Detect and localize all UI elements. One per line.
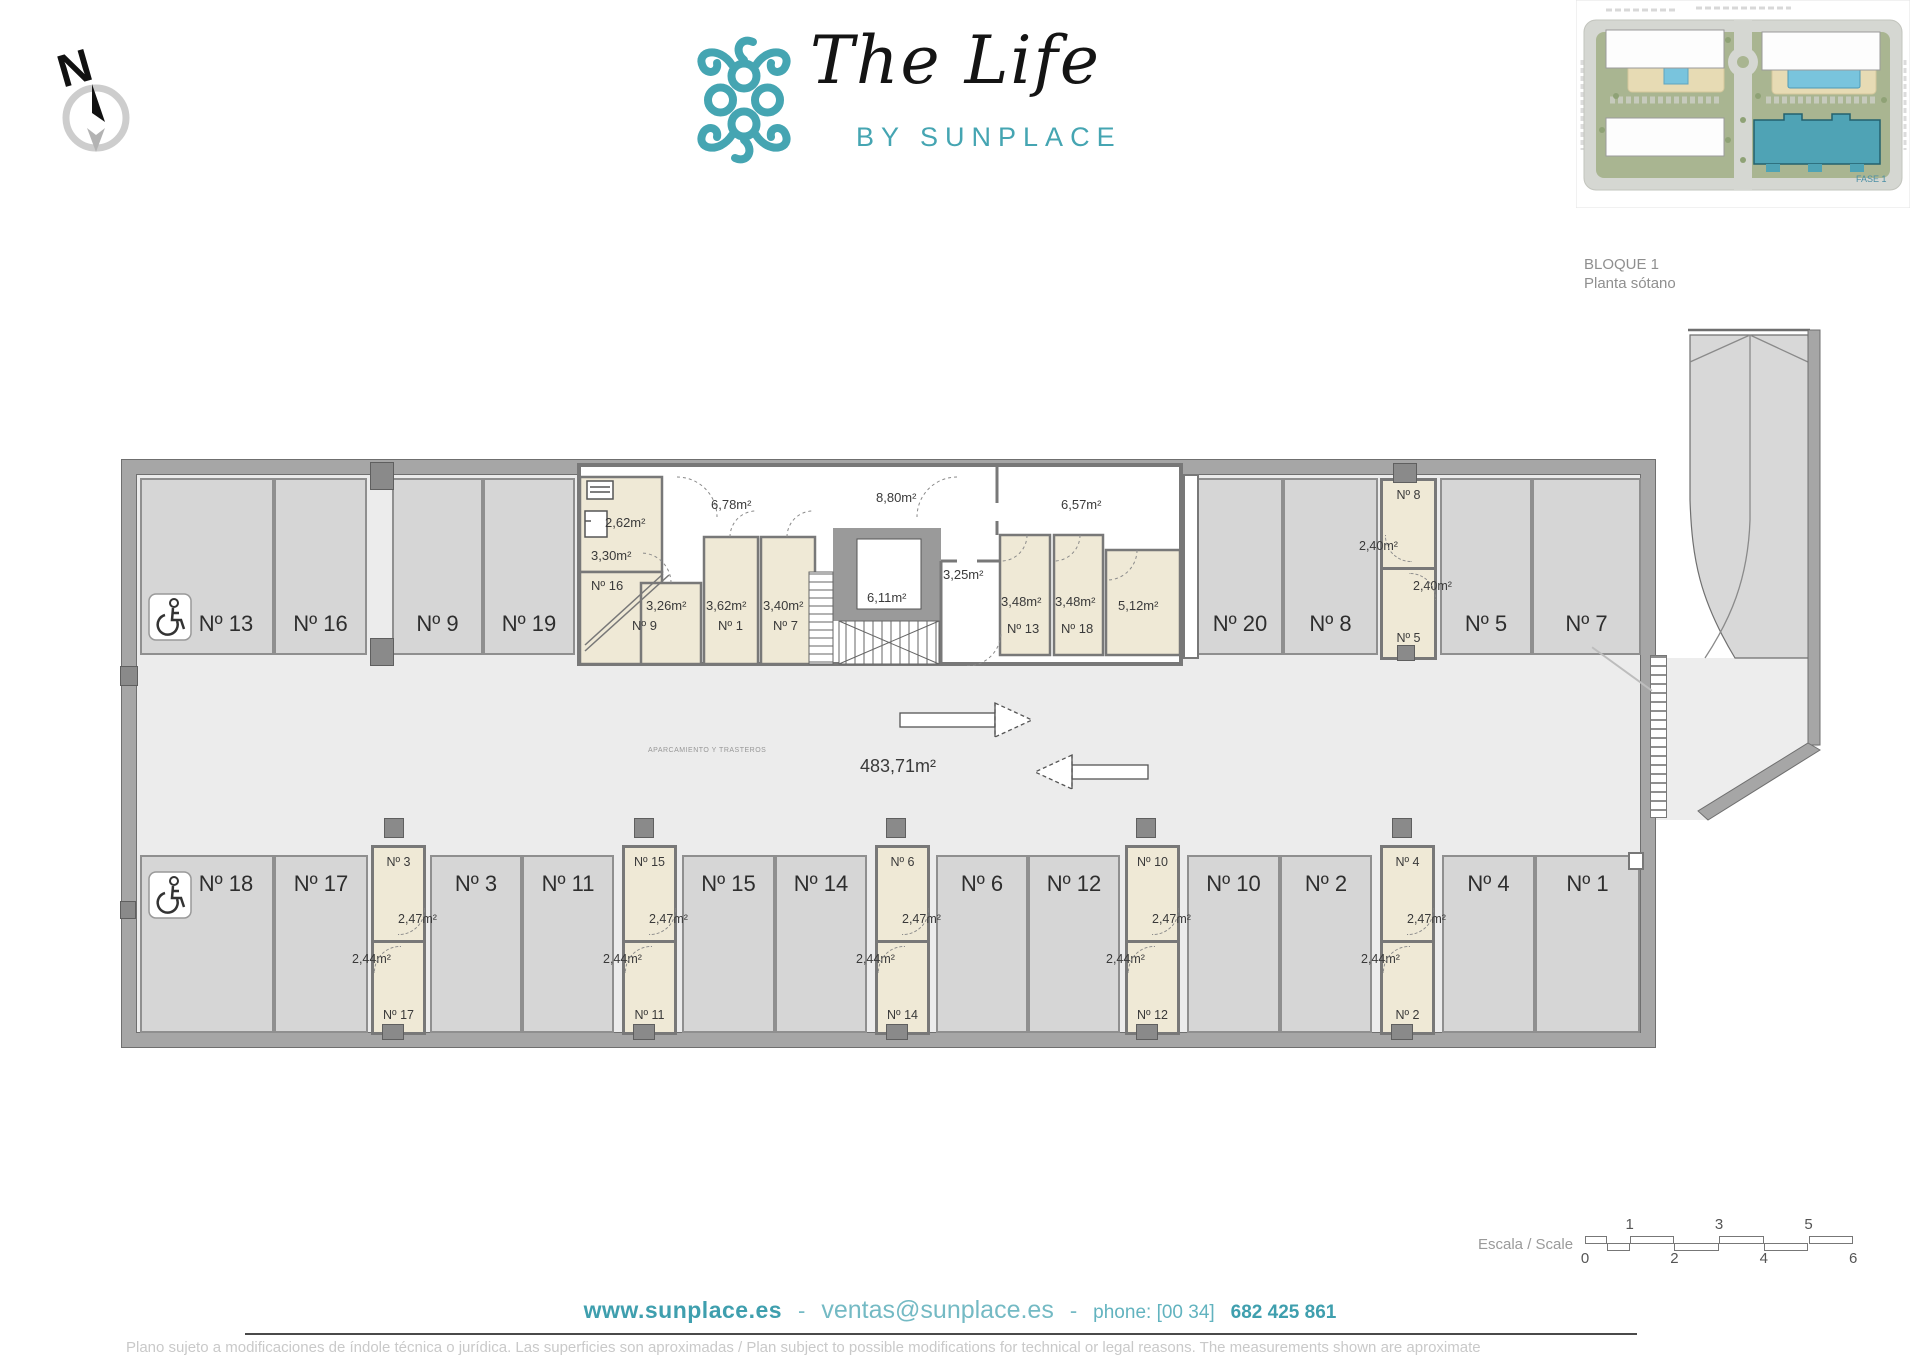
parking-stall: Nº 14 — [775, 855, 867, 1033]
structural-pillar — [1397, 645, 1415, 661]
room-area: 5,12m² — [1118, 598, 1159, 613]
scale-tick-number: 3 — [1709, 1216, 1729, 1233]
structural-pillar — [634, 818, 654, 838]
room-area: 3,26m² — [646, 598, 687, 613]
storage-divider-wall — [371, 940, 426, 943]
elevator-area: 6,11m² — [867, 590, 907, 605]
corridor-area: 6,78m² — [711, 497, 752, 512]
site-plan-thumbnail: FASE 1 — [1576, 0, 1910, 208]
structural-pillar — [1391, 1024, 1413, 1040]
footer-separator: - — [1070, 1298, 1077, 1324]
room-number: Nº 18 — [1061, 621, 1093, 636]
side-door — [1628, 852, 1644, 870]
parking-stall-label: Nº 4 — [1467, 871, 1509, 897]
door-swing — [649, 908, 676, 935]
storage-divider-wall — [875, 940, 930, 943]
storage-room-column: Nº 62,47m²2,44m²Nº 14 — [875, 845, 930, 1035]
footer-divider — [245, 1333, 1637, 1335]
vestibule-area: 3,25m² — [943, 567, 984, 582]
scale-label: Escala / Scale — [1478, 1236, 1573, 1253]
structural-pillar — [120, 666, 138, 686]
parking-stall: Nº 2 — [1280, 855, 1372, 1033]
parking-stall-label: Nº 7 — [1565, 611, 1607, 637]
structural-pillar — [120, 901, 136, 919]
storage-label: Nº 11 — [625, 1008, 674, 1022]
scale-segment — [1809, 1236, 1854, 1244]
storage-label: Nº 6 — [878, 855, 927, 869]
footer-separator: - — [798, 1298, 805, 1324]
phase-label: FASE 1 — [1856, 174, 1887, 184]
corridor-area: 6,57m² — [1061, 497, 1102, 512]
garage-gate — [1650, 655, 1667, 818]
room-area: 3,30m² — [591, 548, 632, 563]
parking-stall: Nº 20 — [1197, 478, 1283, 655]
storage-room-column: Nº 42,47m²2,44m²Nº 2 — [1380, 845, 1435, 1035]
scale-tick-number: 5 — [1799, 1216, 1819, 1233]
parking-stall: Nº 9 — [392, 478, 483, 655]
room-number: Nº 16 — [591, 578, 623, 593]
parking-stall-label: Nº 19 — [502, 611, 557, 637]
logo-title: The Life — [810, 22, 1101, 99]
parking-stall: Nº 18 — [140, 855, 274, 1033]
door-swing — [625, 946, 652, 973]
disclaimer-text: Plano sujeto a modificaciones de índole … — [126, 1339, 1481, 1356]
footer-email: ventas@sunplace.es — [821, 1296, 1053, 1325]
north-compass-icon: N — [44, 38, 156, 168]
parking-stall-label: Nº 14 — [794, 871, 849, 897]
door-swing — [1152, 908, 1179, 935]
structural-pillar — [1393, 463, 1417, 483]
parking-stall: Nº 10 — [1187, 855, 1280, 1033]
structural-pillar — [384, 818, 404, 838]
storage-divider-wall — [1380, 940, 1435, 943]
room-area: 3,40m² — [763, 598, 804, 613]
door-swing — [1409, 573, 1436, 600]
door-swing — [1407, 908, 1434, 935]
storage-label: Nº 3 — [374, 855, 423, 869]
door-swing — [374, 946, 401, 973]
structural-pillar — [633, 1024, 655, 1040]
storage-label: Nº 8 — [1383, 488, 1434, 502]
footer-phone-number: 682 425 861 — [1231, 1302, 1337, 1324]
structural-pillar — [1136, 1024, 1158, 1040]
direction-arrow-left-icon — [1072, 765, 1148, 779]
footer-contact: www.sunplace.es - ventas@sunplace.es - p… — [0, 1296, 1920, 1325]
room-number: Nº 1 — [718, 618, 743, 633]
scale-tick-number: 4 — [1754, 1250, 1774, 1267]
parking-stall: Nº 7 — [1532, 478, 1641, 655]
corridor-area: 8,80m² — [876, 490, 917, 505]
plan-sheet: N The Life BY SUNPLACE — [0, 0, 1920, 1358]
footer-website: www.sunplace.es — [584, 1297, 782, 1324]
footer-phone-label: phone: [00 34] — [1093, 1302, 1215, 1324]
room-area: 3,62m² — [706, 598, 747, 613]
parking-stall-label: Nº 16 — [293, 611, 348, 637]
storage-room-column: Nº 32,47m²2,44m²Nº 17 — [371, 845, 426, 1035]
parking-stall-label: Nº 5 — [1465, 611, 1507, 637]
scale-segment — [1719, 1236, 1764, 1244]
parking-stall-label: Nº 8 — [1309, 611, 1351, 637]
parking-stall: Nº 4 — [1442, 855, 1535, 1033]
scale-tick-number: 2 — [1664, 1250, 1684, 1267]
parking-stall-label: Nº 10 — [1206, 871, 1261, 897]
parking-stall: Nº 15 — [682, 855, 775, 1033]
parking-stall: Nº 17 — [274, 855, 368, 1033]
storage-label: Nº 10 — [1128, 855, 1177, 869]
wheelchair-icon — [148, 871, 192, 919]
storage-room-column: Nº 82,40m²2,40m²Nº 5 — [1380, 478, 1437, 660]
parking-stall: Nº 8 — [1283, 478, 1378, 655]
structural-pillar — [370, 638, 394, 666]
storage-room-column: Nº 152,47m²2,44m²Nº 11 — [622, 845, 677, 1035]
logo-knot-icon — [688, 24, 800, 174]
room-area: 2,62m² — [605, 515, 646, 530]
direction-arrow-right-icon — [900, 713, 995, 727]
parking-stall-label: Nº 12 — [1047, 871, 1102, 897]
scale-tick-number: 6 — [1843, 1250, 1863, 1267]
parking-stall-label: Nº 11 — [542, 871, 595, 897]
parking-stall-label: Nº 3 — [455, 871, 497, 897]
storage-label: Nº 15 — [625, 855, 674, 869]
storage-label: Nº 14 — [878, 1008, 927, 1022]
door-swing — [1383, 946, 1410, 973]
direction-arrows — [880, 695, 1170, 805]
storage-core: 2,62m² 3,30m² Nº 16 3,26m² Nº 9 3,62m² N… — [577, 463, 1183, 666]
parking-stall: Nº 1 — [1535, 855, 1640, 1033]
storage-divider-wall — [1125, 940, 1180, 943]
parking-stall-label: Nº 1 — [1566, 871, 1608, 897]
scale-segment — [1630, 1236, 1675, 1244]
scale-segment — [1585, 1236, 1607, 1244]
structural-pillar — [382, 1024, 404, 1040]
parking-stall-label: Nº 20 — [1213, 611, 1268, 637]
parking-stall: Nº 11 — [522, 855, 614, 1033]
scale-tick-number: 0 — [1575, 1250, 1595, 1267]
door-swing — [902, 908, 929, 935]
parking-stall: Nº 12 — [1028, 855, 1120, 1033]
parking-stall: Nº 5 — [1440, 478, 1532, 655]
aisle-usage-note: APARCAMIENTO Y TRASTEROS — [648, 747, 766, 754]
parking-stall-label: Nº 17 — [294, 871, 349, 897]
storage-divider-wall — [1380, 567, 1437, 570]
room-number: Nº 7 — [773, 618, 798, 633]
door-swing — [878, 946, 905, 973]
room-number: Nº 9 — [632, 618, 657, 633]
structural-pillar — [370, 462, 394, 490]
logo-subtitle: BY SUNPLACE — [856, 122, 1122, 153]
scale-tick-number: 1 — [1620, 1216, 1640, 1233]
room-area: 3,48m² — [1001, 594, 1042, 609]
parking-stall-label: Nº 2 — [1305, 871, 1347, 897]
room-number: Nº 13 — [1007, 621, 1039, 636]
parking-stall-label: Nº 9 — [416, 611, 458, 637]
storage-room-column: Nº 102,47m²2,44m²Nº 12 — [1125, 845, 1180, 1035]
door-swing — [398, 908, 425, 935]
room-area: 3,48m² — [1055, 594, 1096, 609]
door-swing — [1385, 535, 1412, 562]
storage-label: Nº 2 — [1383, 1008, 1432, 1022]
parking-stall-label: Nº 15 — [701, 871, 756, 897]
structural-pillar — [1136, 818, 1156, 838]
structural-pillar — [886, 818, 906, 838]
structural-pillar — [886, 1024, 908, 1040]
wheelchair-icon — [148, 593, 192, 641]
parking-stall: Nº 16 — [274, 478, 367, 655]
structural-pillar — [1392, 818, 1412, 838]
parking-stall: Nº 3 — [430, 855, 522, 1033]
scale-segment — [1607, 1243, 1629, 1251]
storage-label: Nº 17 — [374, 1008, 423, 1022]
storage-label: Nº 12 — [1128, 1008, 1177, 1022]
storage-label: Nº 4 — [1383, 855, 1432, 869]
ramp — [1638, 268, 1883, 853]
storage-divider-wall — [622, 940, 677, 943]
parking-stall: Nº 13 — [140, 478, 274, 655]
parking-stall-label: Nº 6 — [961, 871, 1003, 897]
door-swing — [1128, 946, 1155, 973]
north-label: N — [51, 38, 97, 97]
parking-stall: Nº 19 — [483, 478, 575, 655]
duct-shaft — [1183, 474, 1199, 659]
storage-label: Nº 5 — [1383, 631, 1434, 645]
parking-stall: Nº 6 — [936, 855, 1028, 1033]
